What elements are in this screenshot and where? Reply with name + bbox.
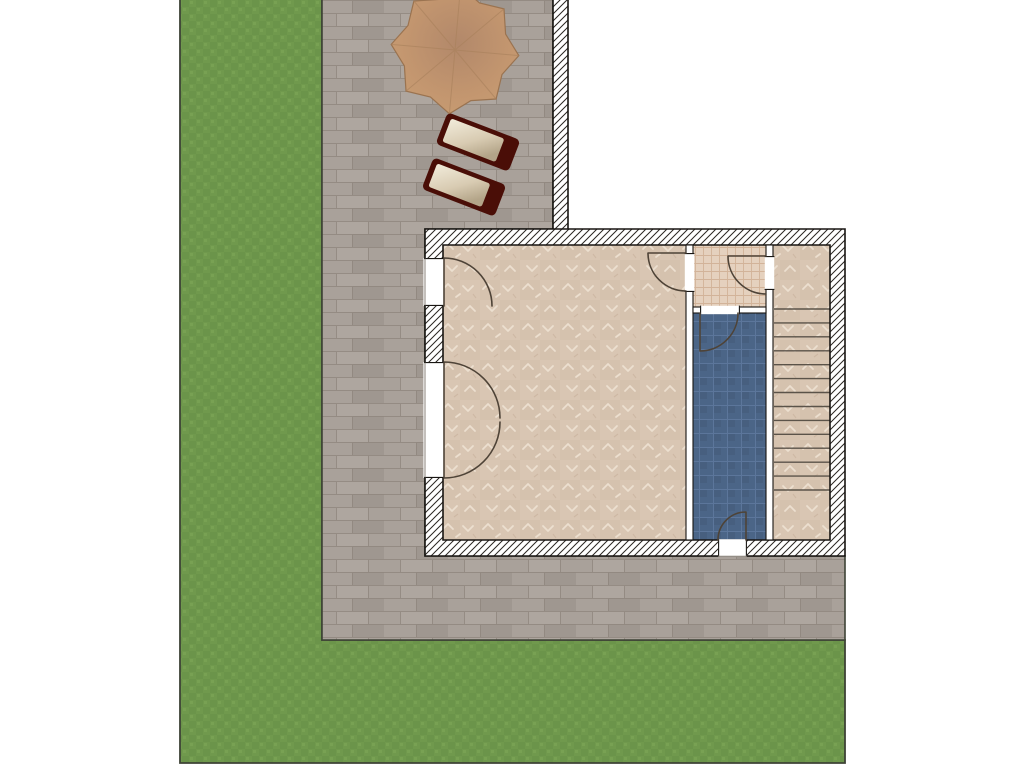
main-room-floor [443, 245, 686, 540]
opening-blueroom-exit [718, 539, 747, 557]
opening-french-door [423, 362, 444, 478]
opening-vestibule-blueroom [700, 306, 740, 314]
opening-patio-door [423, 258, 444, 306]
floor-plan-canvas [0, 0, 1024, 768]
blue-room-floor [693, 313, 766, 540]
opening-main-vestibule [685, 253, 694, 292]
floor-plan-drawing [0, 0, 1024, 768]
opening-vestibule-landing [765, 256, 774, 290]
patio-boundary-wall [553, 0, 568, 231]
vestibule-floor [693, 245, 766, 307]
